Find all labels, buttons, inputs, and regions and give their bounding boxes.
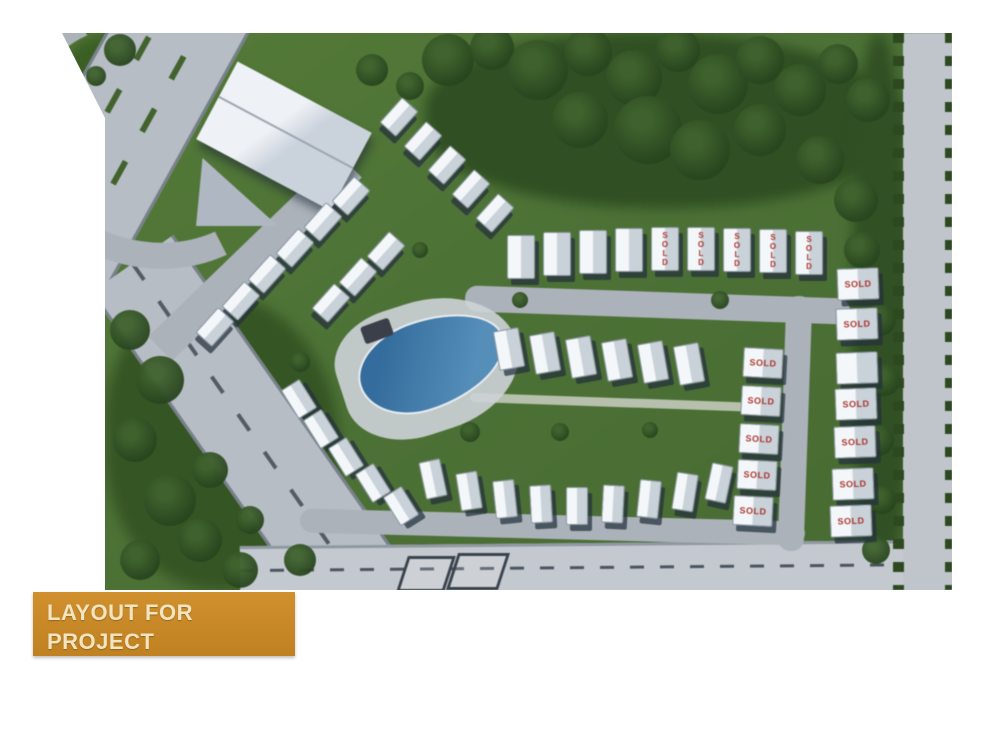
page: SOLDSOLDSOLDSOLDSOLDSOLDSOLDSOLDSOLDSOLD… (0, 0, 1000, 750)
house-roof: SOLD (732, 495, 774, 527)
sold-label: SOLD (743, 348, 782, 378)
house-roof (636, 479, 662, 519)
east-road-median-trees (893, 33, 904, 590)
house-roof: SOLD (829, 504, 872, 537)
sold-label: SOLD (724, 229, 750, 271)
tree (412, 242, 428, 258)
house-roof: SOLD (835, 307, 878, 340)
house-roof: SOLD (723, 228, 751, 272)
house-roof (615, 228, 643, 272)
tree (796, 136, 844, 184)
tree (113, 418, 157, 462)
tree (512, 292, 528, 308)
tree (144, 474, 196, 526)
tree (846, 78, 890, 122)
tree (818, 44, 858, 84)
tree (284, 544, 316, 576)
tree (508, 40, 568, 100)
house-roof: SOLD (738, 423, 780, 455)
house-roof: SOLD (795, 231, 823, 275)
tree (422, 34, 474, 86)
sold-label: SOLD (739, 424, 778, 454)
house-roof (566, 487, 588, 525)
tree (470, 26, 514, 70)
tree (460, 422, 480, 442)
house-roof: SOLD (833, 425, 876, 458)
south-perimeter-road (240, 540, 955, 598)
tree (711, 291, 729, 309)
house-roof: SOLD (740, 385, 782, 417)
tree (120, 540, 160, 580)
tree (236, 506, 264, 534)
tree (552, 92, 608, 148)
tree (834, 178, 878, 222)
house-roof: SOLD (687, 227, 715, 271)
tree (178, 518, 222, 562)
tree (844, 232, 880, 268)
tree (192, 452, 228, 488)
sold-label: SOLD (835, 388, 876, 419)
house-roof (579, 230, 607, 274)
tree (136, 356, 184, 404)
sold-label: SOLD (688, 228, 714, 270)
sold-label: SOLD (836, 308, 877, 339)
tree (564, 28, 612, 76)
tree (862, 536, 890, 564)
house-roof (543, 232, 571, 276)
tree (642, 422, 658, 438)
house-roof: SOLD (834, 387, 877, 420)
sold-label: SOLD (741, 386, 780, 416)
tree (670, 120, 730, 180)
house-roof (507, 235, 535, 279)
east-road-edge-trees (945, 33, 952, 590)
caption-banner: LAYOUT FOR PROJECT (33, 592, 295, 656)
house-roof: SOLD (836, 267, 879, 300)
tree (356, 54, 388, 86)
house-roof (492, 479, 518, 519)
tree (290, 352, 310, 372)
tree (222, 552, 258, 588)
sold-label: SOLD (760, 230, 786, 272)
house-roof: SOLD (831, 467, 874, 500)
sold-label: SOLD (834, 426, 875, 457)
tree (104, 34, 136, 66)
house-roof (529, 484, 553, 523)
sold-label: SOLD (832, 468, 873, 499)
house-roof: SOLD (736, 459, 778, 491)
caption-line-2: PROJECT (47, 627, 295, 656)
tree (110, 310, 150, 350)
tree (734, 104, 786, 156)
tree (774, 64, 826, 116)
sold-label: SOLD (733, 496, 772, 526)
sold-label: SOLD (837, 268, 878, 299)
house-roof: SOLD (759, 229, 787, 273)
house-roof (835, 351, 878, 384)
sold-label: SOLD (796, 232, 822, 274)
caption-line-1: LAYOUT FOR (47, 598, 295, 627)
house-roof: SOLD (742, 347, 784, 379)
house-roof: SOLD (651, 227, 679, 271)
house-roof (601, 484, 625, 523)
tree (551, 423, 569, 441)
sold-label: SOLD (737, 460, 776, 490)
tree (86, 66, 106, 86)
sold-label: SOLD (652, 228, 678, 270)
tree (396, 72, 424, 100)
sold-label: SOLD (830, 505, 871, 536)
